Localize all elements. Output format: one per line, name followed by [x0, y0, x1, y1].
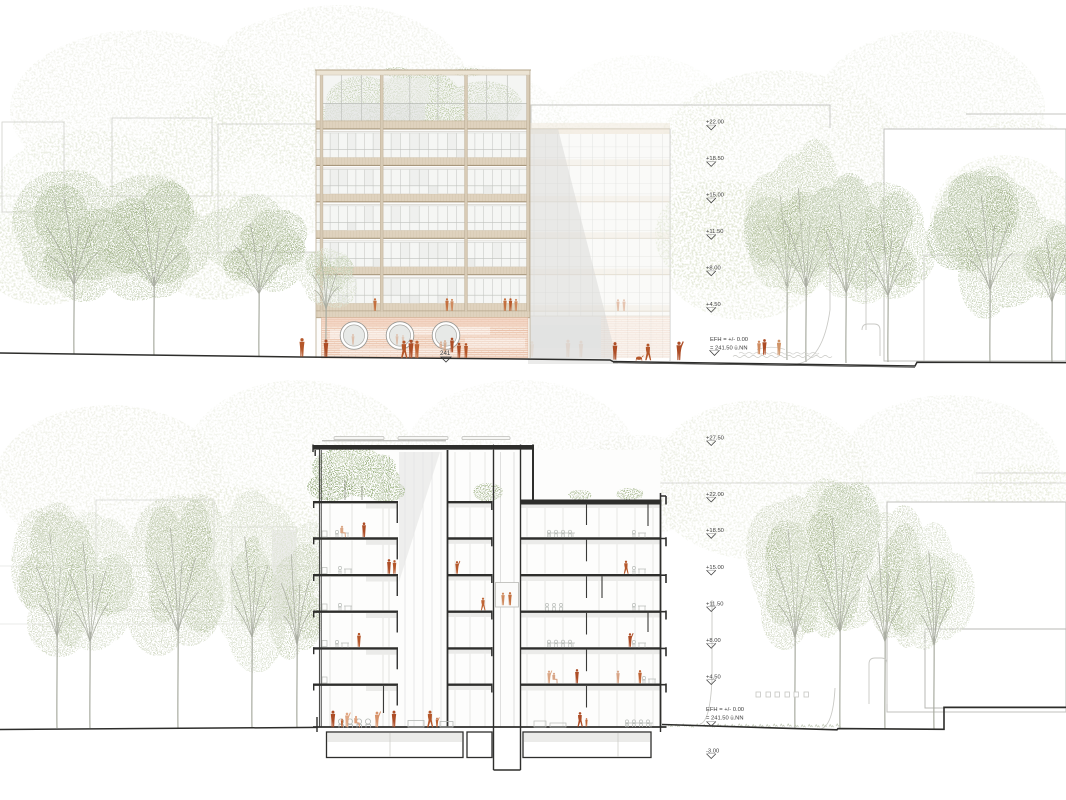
svg-text:+15.00: +15.00	[706, 193, 724, 199]
svg-text:EFH = +/- 0.00: EFH = +/- 0.00	[706, 707, 744, 713]
svg-text:+11.50: +11.50	[706, 229, 723, 235]
svg-text:= 241.50 ü.NN: = 241.50 ü.NN	[710, 346, 748, 352]
svg-text:+8.00: +8.00	[706, 638, 721, 644]
svg-text:= 241.50 ü.NN: = 241.50 ü.NN	[706, 716, 744, 722]
svg-text:+8.00: +8.00	[706, 266, 721, 272]
svg-text:241: 241	[440, 350, 451, 357]
svg-text:+4.50: +4.50	[706, 302, 721, 308]
svg-text:+11.50: +11.50	[706, 601, 723, 607]
svg-text:+22.00: +22.00	[706, 120, 724, 126]
svg-text:+18.50: +18.50	[706, 528, 724, 534]
svg-text:+4.50: +4.50	[706, 674, 721, 680]
svg-text:+15.00: +15.00	[706, 565, 724, 571]
svg-text:-3.00: -3.00	[706, 748, 719, 754]
svg-text:EFH = +/- 0.00: EFH = +/- 0.00	[710, 337, 748, 343]
svg-text:+22.00: +22.00	[706, 492, 724, 498]
svg-text:+18.50: +18.50	[706, 156, 724, 162]
svg-text:+27.50: +27.50	[706, 435, 724, 441]
